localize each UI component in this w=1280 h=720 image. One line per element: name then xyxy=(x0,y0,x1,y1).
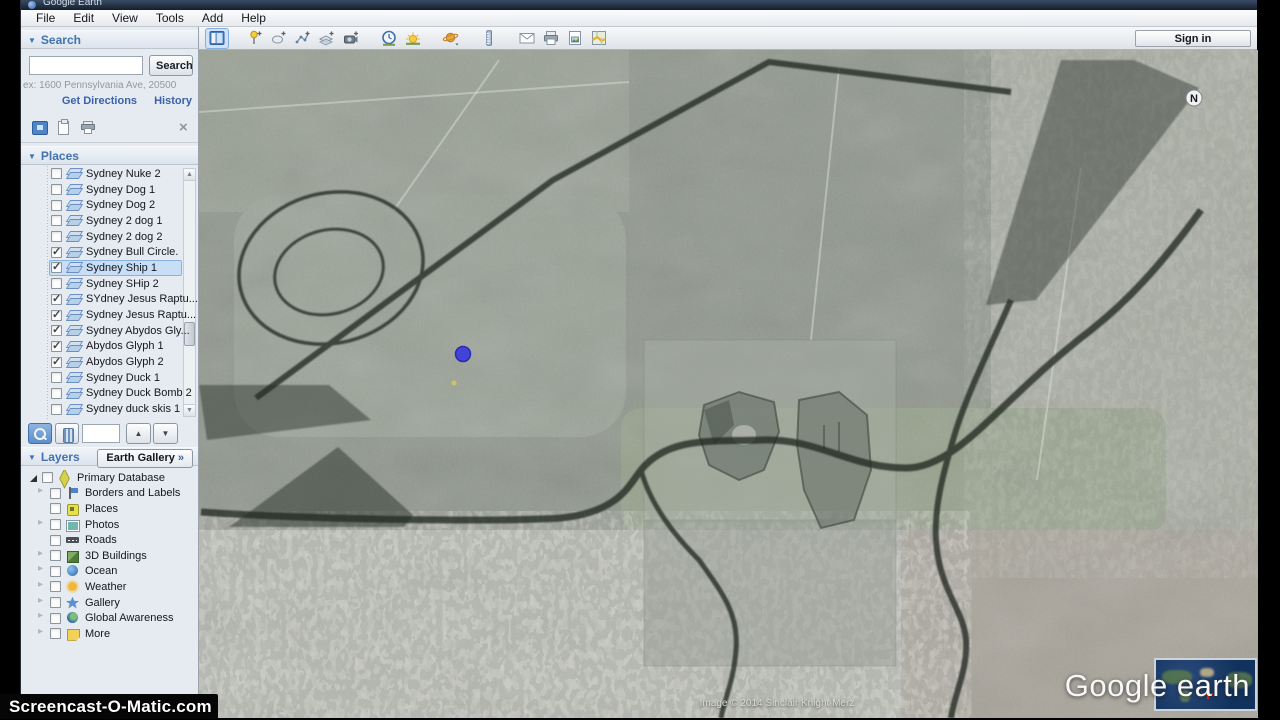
layer-label: Roads xyxy=(85,534,117,546)
layer-label: Photos xyxy=(85,519,119,531)
place-checkbox[interactable] xyxy=(51,372,62,383)
layer-label: Ocean xyxy=(85,565,117,577)
tree-expander-icon[interactable] xyxy=(37,598,47,608)
polygon-icon[interactable] xyxy=(267,28,291,49)
placemark-layer-icon xyxy=(66,404,81,415)
scroll-down-arrow-icon[interactable]: ▼ xyxy=(184,404,195,416)
place-checkbox[interactable] xyxy=(51,325,62,336)
abydos-overlay-images xyxy=(644,340,896,666)
layer-checkbox[interactable] xyxy=(50,503,61,514)
roads-icon xyxy=(66,534,80,546)
placemark-layer-icon xyxy=(66,310,81,321)
layer-checkbox[interactable] xyxy=(50,550,61,561)
place-checkbox[interactable] xyxy=(51,341,62,352)
email-icon[interactable] xyxy=(515,28,539,49)
place-checkbox[interactable] xyxy=(51,310,62,321)
map-viewport[interactable]: N Image © 2014 Sinclair Knight Merz Goog… xyxy=(199,50,1258,718)
layer-label: Places xyxy=(85,503,118,515)
places-item[interactable]: Sydney SHip 2 xyxy=(21,276,198,292)
window-title: Google Earth xyxy=(43,0,102,8)
search-input[interactable] xyxy=(29,56,143,75)
save-image-icon[interactable] xyxy=(563,28,587,49)
save-to-places-icon[interactable] xyxy=(32,121,48,135)
close-search-icon[interactable]: × xyxy=(179,119,195,133)
primary-db-icon xyxy=(58,472,72,484)
place-checkbox[interactable] xyxy=(51,168,62,179)
layer-checkbox[interactable] xyxy=(50,566,61,577)
places-l-icon xyxy=(66,503,80,515)
layer-label: 3D Buildings xyxy=(85,550,147,562)
get-directions-link[interactable]: Get Directions xyxy=(62,95,137,107)
placemark-layer-icon xyxy=(66,388,81,399)
layers-item[interactable]: Borders and Labels xyxy=(21,486,198,502)
place-checkbox[interactable] xyxy=(51,278,62,289)
layer-checkbox[interactable] xyxy=(50,597,61,608)
placemark-layer-icon xyxy=(66,168,81,179)
places-item[interactable]: Sydney Abydos Gly... xyxy=(21,323,198,339)
placemark-layer-icon xyxy=(66,278,81,289)
tree-expander-icon[interactable] xyxy=(37,613,47,623)
layers-item[interactable]: Primary Database xyxy=(21,470,198,486)
place-label: Sydney Bull Circle. xyxy=(86,246,178,258)
places-item[interactable]: Sydney Nuke 2 xyxy=(21,166,198,182)
scroll-up-arrow-icon[interactable]: ▲ xyxy=(184,169,195,181)
layers-item[interactable]: Global Awareness xyxy=(21,610,198,626)
place-checkbox[interactable] xyxy=(51,262,62,273)
placemark-layer-icon xyxy=(66,231,81,242)
menu-item-help[interactable]: Help xyxy=(232,11,275,25)
weather-icon xyxy=(66,581,80,593)
tree-expander-icon[interactable] xyxy=(37,488,47,498)
place-checkbox[interactable] xyxy=(51,200,62,211)
menu-bar: FileEditViewToolsAddHelp xyxy=(21,10,1257,27)
more-icon xyxy=(66,628,80,640)
menu-item-view[interactable]: View xyxy=(103,11,147,25)
layer-checkbox[interactable] xyxy=(50,535,61,546)
places-item[interactable]: Sydney Duck 1 xyxy=(21,370,198,386)
layers-item[interactable]: 3D Buildings xyxy=(21,548,198,564)
sidebar: Search Search ex: 1600 Pennsylvania Ave,… xyxy=(21,27,199,718)
place-label: SYdney Jesus Raptu... xyxy=(86,293,198,305)
gallery-icon xyxy=(66,597,80,609)
layer-checkbox[interactable] xyxy=(50,581,61,592)
layers-item[interactable]: Ocean xyxy=(21,564,198,580)
google-earth-window: Google Earth FileEditViewToolsAddHelp Se… xyxy=(20,0,1257,718)
search-results-actions: × xyxy=(21,115,198,143)
place-label: Sydney 2 dog 2 xyxy=(86,231,162,243)
places-item[interactable]: Sydney 2 dog 2 xyxy=(21,229,198,245)
historical-imagery-icon[interactable] xyxy=(377,28,401,49)
layer-label: Primary Database xyxy=(77,472,165,484)
place-label: Abydos Glyph 1 xyxy=(86,340,164,352)
search-panel-header[interactable]: Search xyxy=(21,30,198,49)
place-label: Sydney Abydos Gly... xyxy=(86,325,190,337)
planets-icon[interactable] xyxy=(439,28,463,49)
tree-expander-icon[interactable] xyxy=(37,520,47,530)
tree-expander-icon[interactable] xyxy=(37,566,47,576)
places-item[interactable]: Sydney Dog 2 xyxy=(21,197,198,213)
place-label: Sydney 2 dog 1 xyxy=(86,215,162,227)
place-label: Sydney Jesus Raptu... xyxy=(86,309,196,321)
imagery-attribution: Image © 2014 Sinclair Knight Merz xyxy=(637,698,917,709)
menu-item-tools[interactable]: Tools xyxy=(147,11,193,25)
places-filter-input[interactable] xyxy=(82,424,120,443)
place-checkbox[interactable] xyxy=(51,215,62,226)
sign-in-button[interactable]: Sign in xyxy=(1135,30,1251,47)
places-item[interactable]: Sydney duck skis 1 xyxy=(21,401,198,417)
layer-checkbox[interactable] xyxy=(50,519,61,530)
print-icon[interactable] xyxy=(539,28,563,49)
place-label: Sydney SHip 2 xyxy=(86,278,159,290)
app-globe-icon xyxy=(28,1,36,9)
place-checkbox[interactable] xyxy=(51,388,62,399)
tree-expander-icon[interactable] xyxy=(37,629,47,639)
blue-dot-marker[interactable] xyxy=(456,347,471,362)
move-up-button[interactable]: ▲ xyxy=(126,423,151,444)
layers-item[interactable]: Roads xyxy=(21,532,198,548)
zoom-to-place-button[interactable] xyxy=(28,423,52,444)
place-checkbox[interactable] xyxy=(51,231,62,242)
place-checkbox[interactable] xyxy=(51,247,62,258)
place-label: Abydos Glyph 2 xyxy=(86,356,164,368)
placemark-layer-icon xyxy=(66,215,81,226)
move-down-button[interactable]: ▼ xyxy=(153,423,178,444)
place-label: Sydney Duck 1 xyxy=(86,372,160,384)
sunlight-icon[interactable] xyxy=(401,28,425,49)
photos-icon xyxy=(66,519,80,531)
placemark-layer-icon xyxy=(66,247,81,258)
place-label: Sydney Duck Bomb 2 xyxy=(86,387,192,399)
tree-expander-icon[interactable] xyxy=(29,473,39,483)
layer-label: More xyxy=(85,628,110,640)
tree-expander-icon[interactable] xyxy=(37,582,47,592)
tree-expander-icon[interactable] xyxy=(37,551,47,561)
sidebar-toggle-icon[interactable] xyxy=(205,28,229,49)
placemark-layer-icon xyxy=(66,341,81,352)
layers-tree: Primary DatabaseBorders and LabelsPlaces… xyxy=(21,470,198,718)
layer-checkbox[interactable] xyxy=(42,472,53,483)
layer-checkbox[interactable] xyxy=(50,628,61,639)
layers-item[interactable]: Gallery xyxy=(21,595,198,611)
search-hint: ex: 1600 Pennsylvania Ave, 20500 xyxy=(23,80,176,91)
print-icon[interactable] xyxy=(81,121,97,135)
spacer xyxy=(37,535,47,545)
search-form: Search xyxy=(21,54,198,78)
place-checkbox[interactable] xyxy=(51,404,62,415)
places-list: Sydney Nuke 2Sydney Dog 1Sydney Dog 2Syd… xyxy=(21,166,198,419)
placemark-layer-icon xyxy=(66,262,81,273)
image-overlay-icon[interactable] xyxy=(315,28,339,49)
layer-checkbox[interactable] xyxy=(50,613,61,624)
screencast-watermark: Screencast-O-Matic.com xyxy=(0,694,218,719)
search-button[interactable]: Search xyxy=(149,55,193,76)
path-icon[interactable] xyxy=(291,28,315,49)
menu-item-file[interactable]: File xyxy=(27,11,64,25)
spacer xyxy=(37,504,47,514)
place-label: Sydney Nuke 2 xyxy=(86,168,161,180)
title-bar: Google Earth xyxy=(21,0,1257,10)
places-item[interactable]: Sydney Duck Bomb 2 xyxy=(21,386,198,402)
placemark-icon[interactable] xyxy=(243,28,267,49)
compass-north-indicator[interactable]: N xyxy=(1186,90,1202,106)
show-historical-button[interactable] xyxy=(55,423,79,444)
place-label: Sydney Dog 2 xyxy=(86,199,155,211)
yellow-dot-marker xyxy=(452,381,457,386)
place-label: Sydney duck skis 1 xyxy=(86,403,180,415)
places-item[interactable]: Sydney 2 dog 1 xyxy=(21,213,198,229)
svg-text:N: N xyxy=(1190,93,1198,105)
google-earth-logo: Google earth xyxy=(1065,668,1250,704)
place-checkbox[interactable] xyxy=(51,294,62,305)
global-icon xyxy=(66,612,80,624)
place-checkbox[interactable] xyxy=(51,184,62,195)
ruler-icon[interactable] xyxy=(477,28,501,49)
main-toolbar: Sign in xyxy=(199,27,1257,50)
layer-label: Global Awareness xyxy=(85,612,173,624)
places-controls: ▲ ▼ xyxy=(21,420,198,446)
place-label: Sydney Dog 1 xyxy=(86,184,155,196)
layer-checkbox[interactable] xyxy=(50,488,61,499)
layers-item[interactable]: Weather xyxy=(21,579,198,595)
buildings-icon xyxy=(66,550,80,562)
earth-gallery-button[interactable]: Earth Gallery» xyxy=(97,449,193,468)
places-item[interactable]: Abydos Glyph 2 xyxy=(21,354,198,370)
placemark-layer-icon xyxy=(66,357,81,368)
places-item[interactable]: Sydney Bull Circle. xyxy=(21,244,198,260)
layer-label: Gallery xyxy=(85,597,120,609)
ocean-icon xyxy=(66,565,80,577)
borders-icon xyxy=(66,487,80,499)
view-in-maps-icon[interactable] xyxy=(587,28,611,49)
placemark-layer-icon xyxy=(66,184,81,195)
history-link[interactable]: History xyxy=(154,95,192,107)
places-item[interactable]: Sydney Jesus Raptu... xyxy=(21,307,198,323)
places-panel-header[interactable]: Places xyxy=(21,146,198,165)
place-label: Sydney Ship 1 xyxy=(86,262,157,274)
layers-item[interactable]: Places xyxy=(21,501,198,517)
placemark-layer-icon xyxy=(66,372,81,383)
places-item[interactable]: Sydney Dog 1 xyxy=(21,182,198,198)
places-item[interactable]: Sydney Ship 1 xyxy=(21,260,198,276)
place-checkbox[interactable] xyxy=(51,357,62,368)
menu-item-edit[interactable]: Edit xyxy=(64,11,103,25)
satellite-scene: N xyxy=(199,50,1258,718)
copy-icon[interactable] xyxy=(58,121,69,135)
placemark-layer-icon xyxy=(66,325,81,336)
places-item[interactable]: Abydos Glyph 1 xyxy=(21,339,198,355)
layers-item[interactable]: More xyxy=(21,626,198,642)
menu-item-add[interactable]: Add xyxy=(193,11,232,25)
record-tour-icon[interactable] xyxy=(339,28,363,49)
layer-label: Borders and Labels xyxy=(85,487,180,499)
placemark-layer-icon xyxy=(66,294,81,305)
layer-label: Weather xyxy=(85,581,126,593)
layers-item[interactable]: Photos xyxy=(21,517,198,533)
places-item[interactable]: SYdney Jesus Raptu... xyxy=(21,292,198,308)
placemark-layer-icon xyxy=(66,200,81,211)
